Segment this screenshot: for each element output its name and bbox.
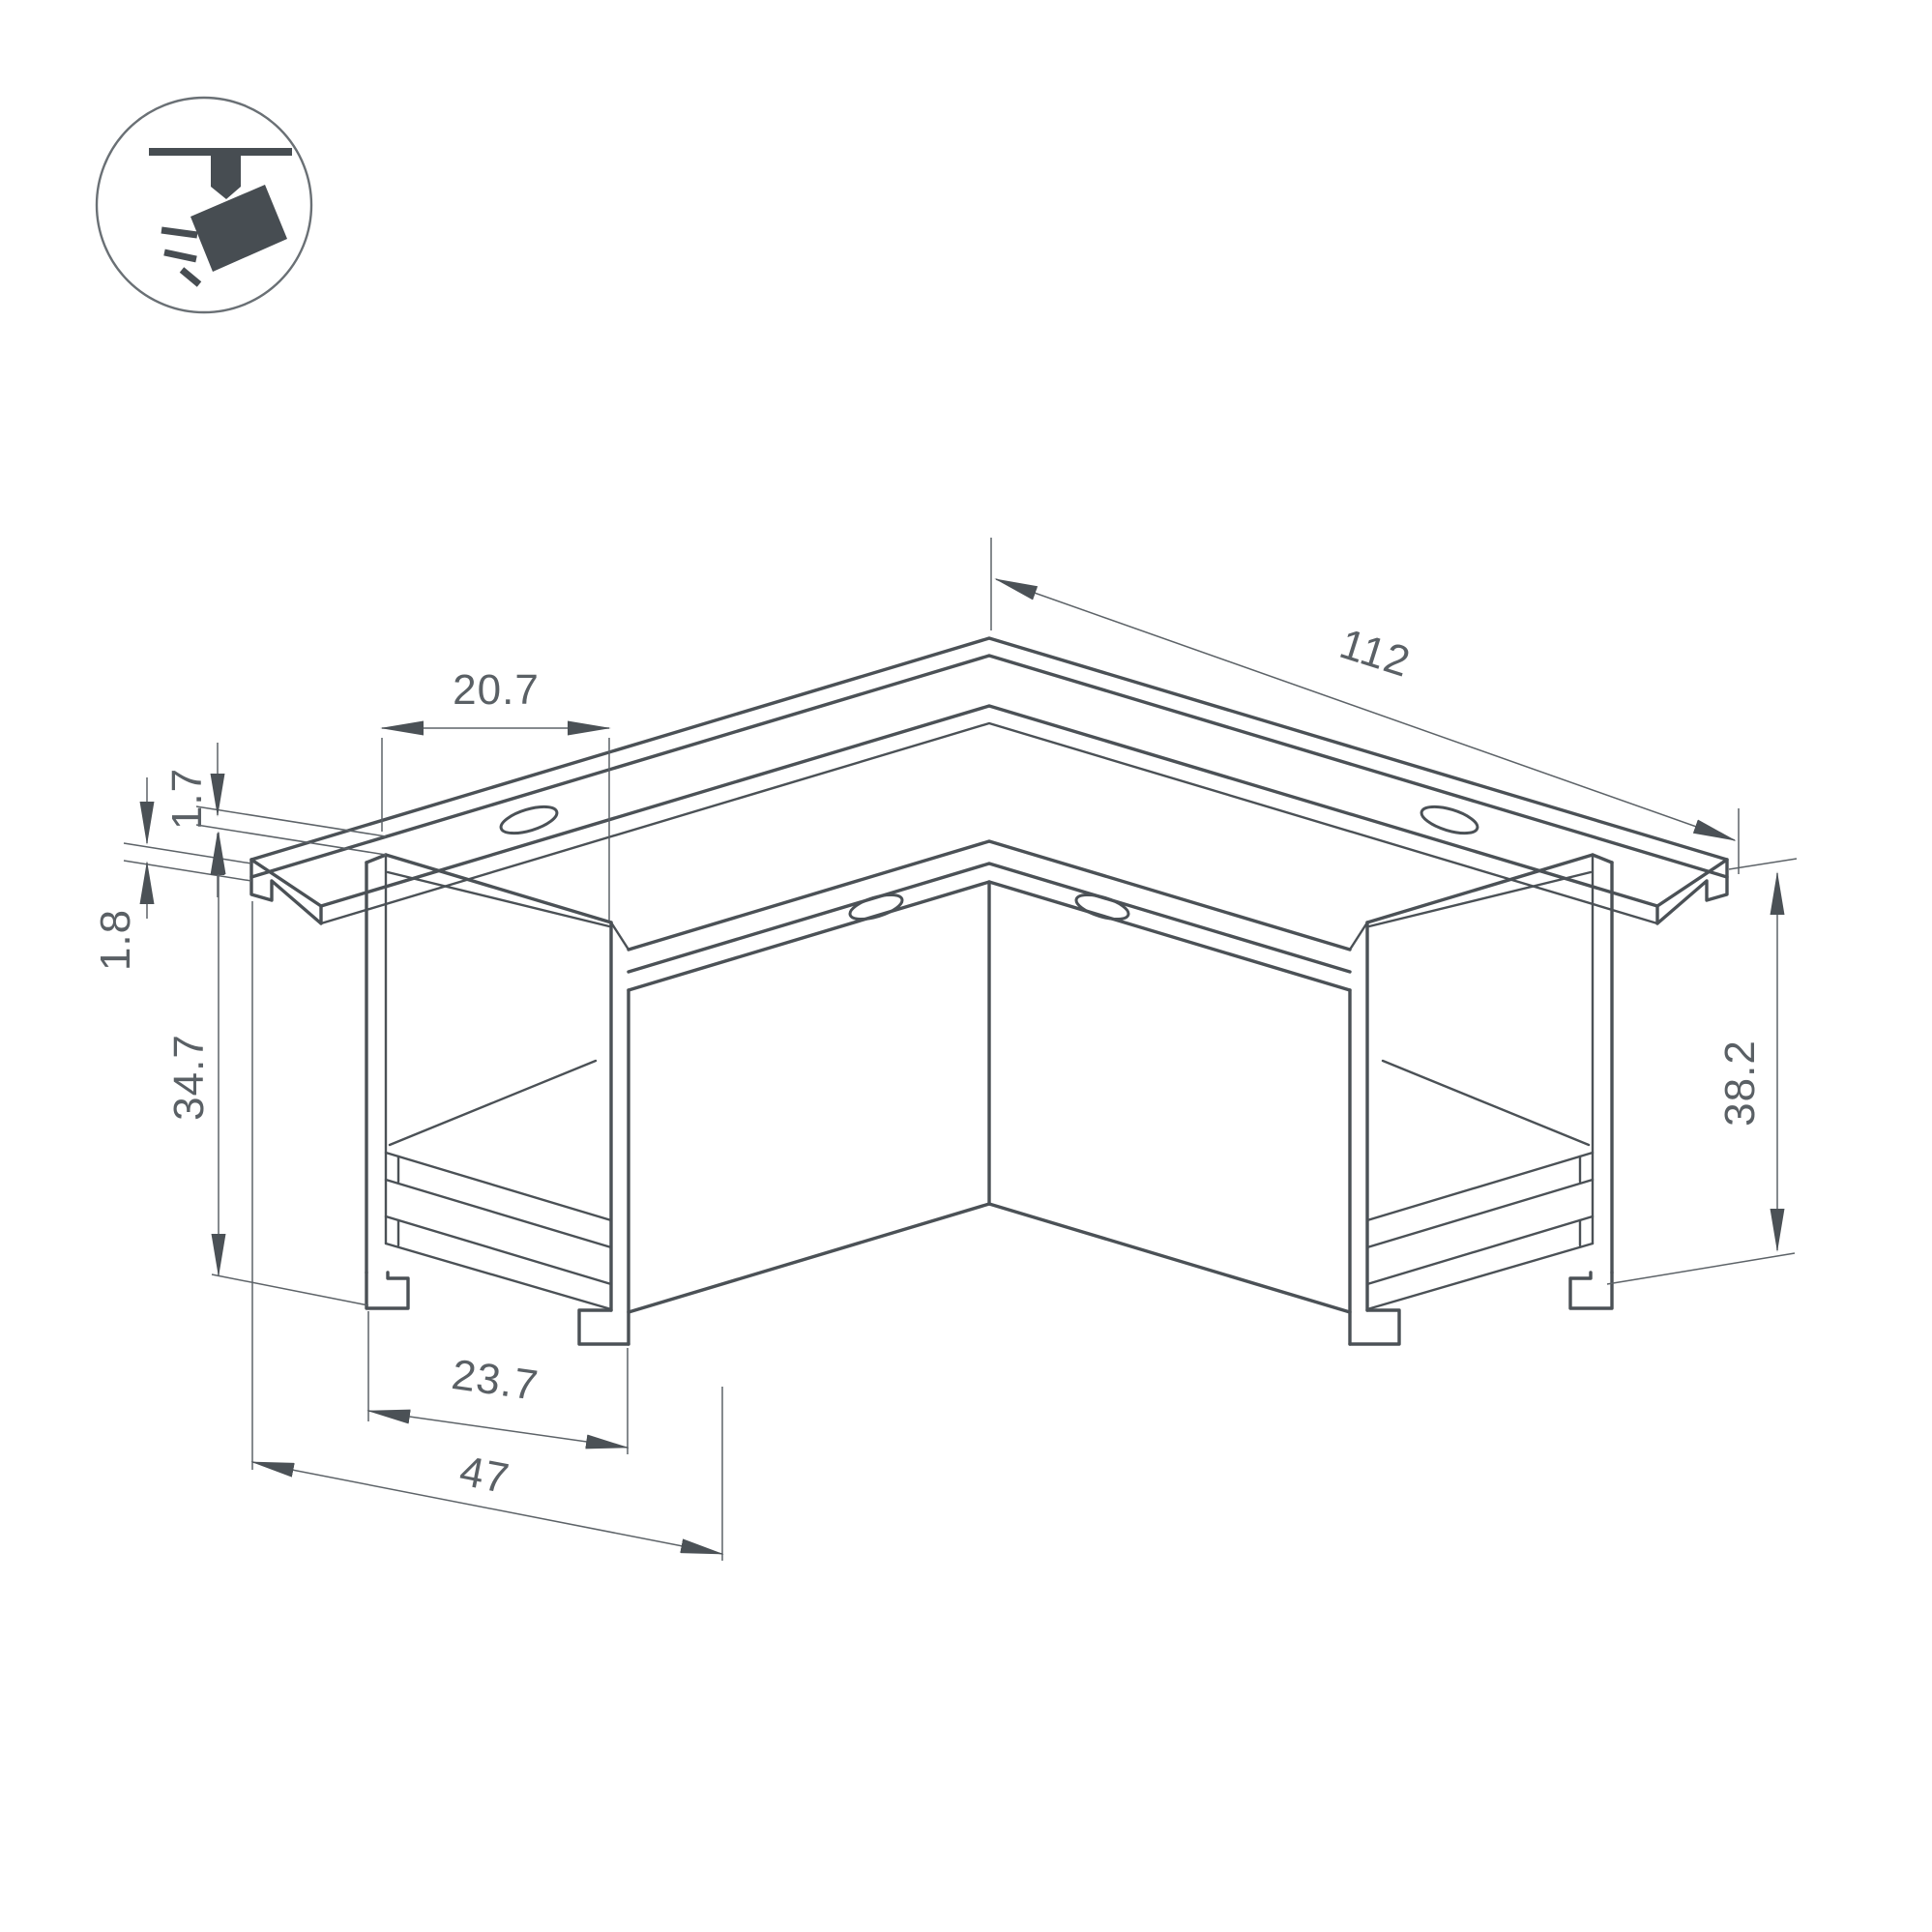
channel-left-foot bbox=[366, 1273, 408, 1308]
flange-end-face-left bbox=[251, 860, 321, 923]
dim-flange-overhang: 20.7 bbox=[382, 666, 609, 921]
dim-label-overall-width: 47 bbox=[455, 1448, 512, 1504]
dim-mount-gap: 1.8 bbox=[92, 743, 386, 971]
dim-label-arm-length: 112 bbox=[1334, 620, 1417, 687]
dim-flange-thickness: 1.7 bbox=[124, 768, 251, 919]
cavity-foot-left bbox=[579, 1310, 629, 1344]
channel-left-end-top bbox=[366, 855, 386, 863]
dim-arm-length: 112 bbox=[991, 538, 1739, 874]
dim-body-height: 34.7 bbox=[165, 833, 368, 1305]
channel-left-interior-top bbox=[388, 872, 609, 926]
profile-channel-right bbox=[1367, 855, 1612, 1309]
channel-right-interior-top bbox=[1369, 872, 1591, 926]
technical-drawing-canvas: 20.7 112 1.7 1.8 34.7 23.7 47 38.2 bbox=[0, 0, 1932, 1932]
screw-hole bbox=[1419, 802, 1480, 838]
cavity-foot-right bbox=[1350, 1310, 1399, 1344]
dim-overall-height: 38.2 bbox=[1607, 859, 1797, 1284]
screw-hole bbox=[847, 890, 904, 923]
screw-hole bbox=[1073, 890, 1130, 923]
dim-channel-width: 23.7 bbox=[368, 1311, 628, 1454]
channel-left-interior-diagonal bbox=[390, 1061, 596, 1145]
track-spotlight-icon bbox=[97, 98, 311, 312]
icon-ceiling-bar bbox=[149, 148, 292, 156]
channel-right-interior-diagonal bbox=[1383, 1061, 1589, 1145]
dim-label-body-height: 34.7 bbox=[165, 1034, 213, 1121]
cavity-bottom-edges bbox=[629, 1204, 1350, 1312]
icon-circle bbox=[97, 98, 311, 312]
dim-label-flange-overhang: 20.7 bbox=[453, 666, 540, 714]
dim-label-mount-gap: 1.8 bbox=[92, 909, 139, 971]
dim-label-flange-thickness: 1.7 bbox=[163, 768, 211, 830]
profile-channel-left bbox=[366, 855, 611, 1309]
dim-label-overall-height: 38.2 bbox=[1716, 1039, 1764, 1127]
channel-left-grooves bbox=[386, 1153, 611, 1309]
channel-right-end-top bbox=[1593, 855, 1612, 863]
channel-right-foot bbox=[1570, 1273, 1612, 1308]
flange-inner-top-edge bbox=[321, 706, 1657, 906]
dim-label-channel-width: 23.7 bbox=[449, 1351, 542, 1410]
flange-end-face-right bbox=[1657, 860, 1727, 923]
dim-overall-width: 47 bbox=[252, 901, 722, 1561]
channel-left-top-edge bbox=[386, 855, 611, 922]
channel-right-grooves bbox=[1367, 1153, 1593, 1309]
screw-hole bbox=[498, 802, 560, 838]
channel-right-top-edge bbox=[1367, 855, 1593, 922]
drawing-page: 20.7 112 1.7 1.8 34.7 23.7 47 38.2 bbox=[0, 0, 1932, 1932]
